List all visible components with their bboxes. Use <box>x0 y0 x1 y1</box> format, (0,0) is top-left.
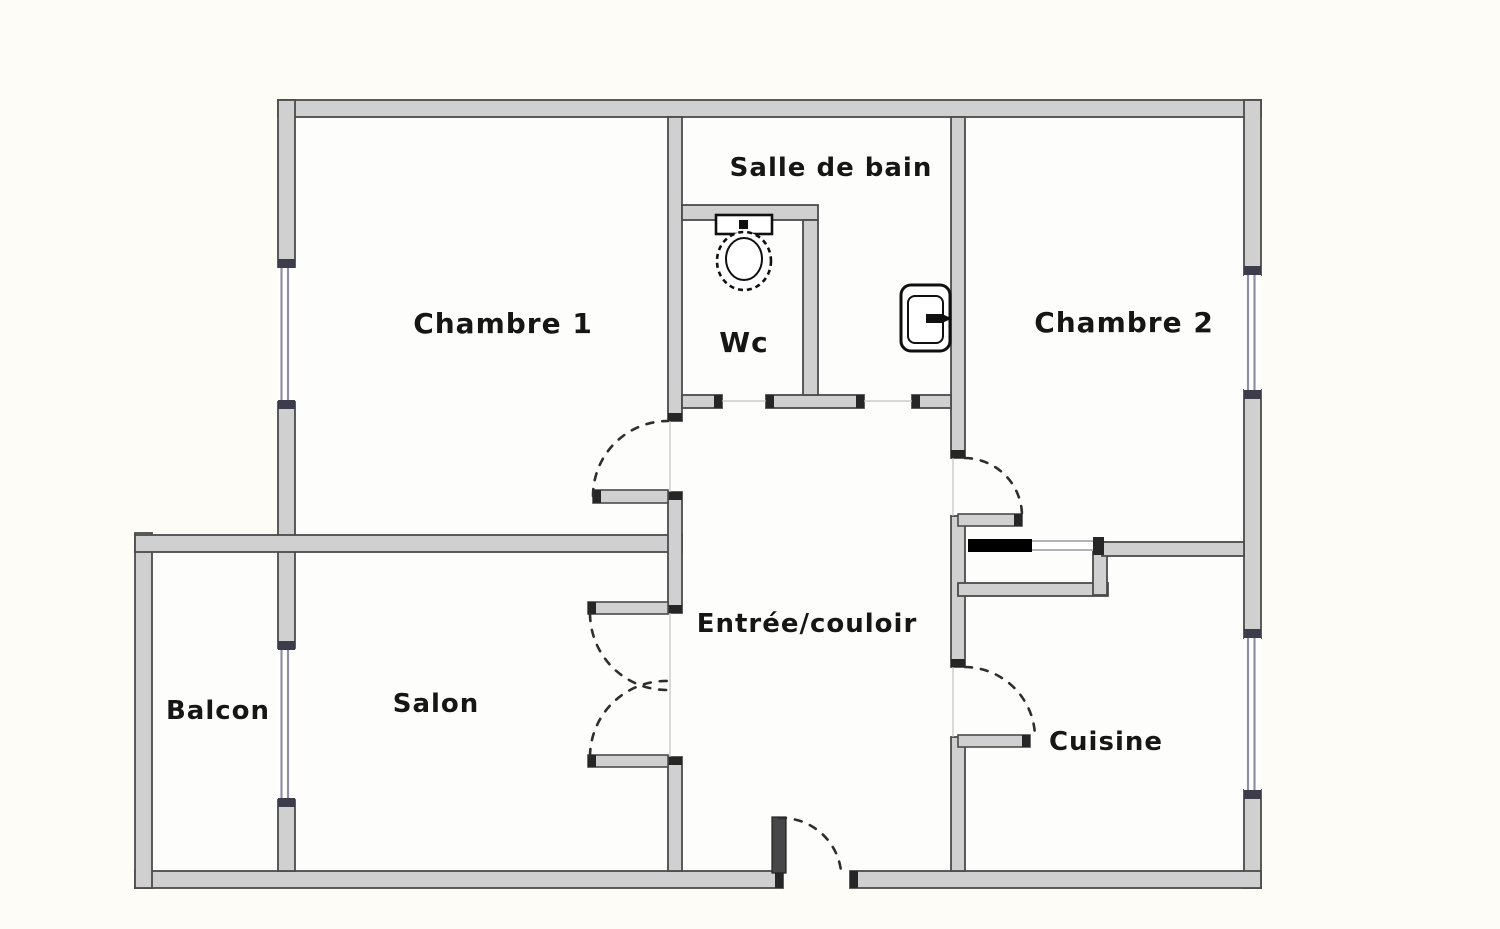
door-leaf-cap <box>1014 514 1022 526</box>
door-leaf-cap <box>1022 735 1030 747</box>
room-label-salon: Salon <box>393 689 480 719</box>
wall-exterior-bottom-left <box>135 871 783 888</box>
room-label-cuisine: Cuisine <box>1049 727 1163 757</box>
room-label-salle-de-bain: Salle de bain <box>730 153 933 183</box>
door-jamb-cap <box>668 757 682 765</box>
window-cap <box>1244 629 1261 638</box>
room-label-chambre-2: Chambre 2 <box>1034 306 1214 339</box>
door-leaf <box>593 490 668 503</box>
wall-closet-bottom <box>958 583 1108 596</box>
wall-corridor-left-middle <box>668 492 682 613</box>
door-jamb-cap <box>951 450 965 458</box>
window-cap <box>278 259 295 268</box>
window-cuisine-right <box>1244 629 1261 799</box>
wall-exterior-right-middle <box>1244 390 1261 638</box>
wall-exterior-bottom-right <box>850 871 1261 888</box>
door-jamb-cap <box>668 413 682 421</box>
door-jamb-cap <box>714 395 722 408</box>
door-jamb-cap <box>766 395 774 408</box>
toilet-button <box>739 220 748 229</box>
window-bed <box>1244 275 1261 390</box>
door-jamb-cap <box>850 871 858 888</box>
wall-exterior-right-upper <box>1244 100 1261 275</box>
door-leaf-top <box>588 602 668 614</box>
floor-plan-canvas: Chambre 1 Salle de bain Wc Chambre 2 Ent… <box>0 0 1500 929</box>
door-leaf-bottom <box>588 755 668 767</box>
window-cap <box>1244 790 1261 799</box>
window-bed <box>1244 638 1261 790</box>
window-chambre1-left <box>278 259 295 409</box>
toilet-bowl-inner <box>726 238 762 280</box>
pass-through-cap <box>1093 537 1104 555</box>
wall-corridor-left-upper <box>668 117 682 421</box>
room-label-wc: Wc <box>719 326 768 359</box>
wall-balcony-left <box>135 533 152 888</box>
window-cap <box>1244 390 1261 399</box>
wall-exterior-left-lower <box>278 800 295 871</box>
door-jamb-cap <box>668 605 682 613</box>
room-label-entree-couloir: Entrée/couloir <box>697 609 918 639</box>
window-cap <box>1244 266 1261 275</box>
wall-corridor-right-upper <box>951 117 965 458</box>
door-leaf <box>958 514 1022 526</box>
door-leaf-cap <box>588 602 596 614</box>
wall-exterior-left-upper <box>278 100 295 267</box>
window-cap <box>278 400 295 409</box>
wall-corridor-left-lower <box>668 757 682 871</box>
wall-exterior-top <box>278 100 1261 117</box>
door-jamb-cap <box>912 395 920 408</box>
door-jamb-cap <box>856 395 864 408</box>
window-chambre2-right <box>1244 266 1261 399</box>
door-jamb-cap <box>668 492 682 500</box>
floor-plan-svg: Chambre 1 Salle de bain Wc Chambre 2 Ent… <box>0 0 1500 929</box>
wall-exterior-left-middle <box>278 402 295 648</box>
door-leaf <box>772 817 786 873</box>
wall-corridor-right-lower <box>951 737 965 871</box>
wall-chambre2-cuisine-divider <box>1102 542 1244 556</box>
wall-balcony-top-and-chambre1-salon-divider <box>135 535 682 552</box>
wall-wc-right <box>803 220 818 395</box>
room-label-chambre-1: Chambre 1 <box>413 307 593 340</box>
sink-icon <box>901 285 952 351</box>
toilet-icon <box>716 215 772 290</box>
wall-bathroom-bottom-middle <box>766 395 864 408</box>
window-cap <box>278 798 295 807</box>
door-leaf <box>958 735 1030 747</box>
window-cap <box>278 641 295 650</box>
door-jamb-cap <box>951 659 965 667</box>
window-balcon-salon <box>278 641 295 807</box>
closet-sliding-bar <box>968 539 1032 552</box>
room-label-balcon: Balcon <box>166 696 270 726</box>
